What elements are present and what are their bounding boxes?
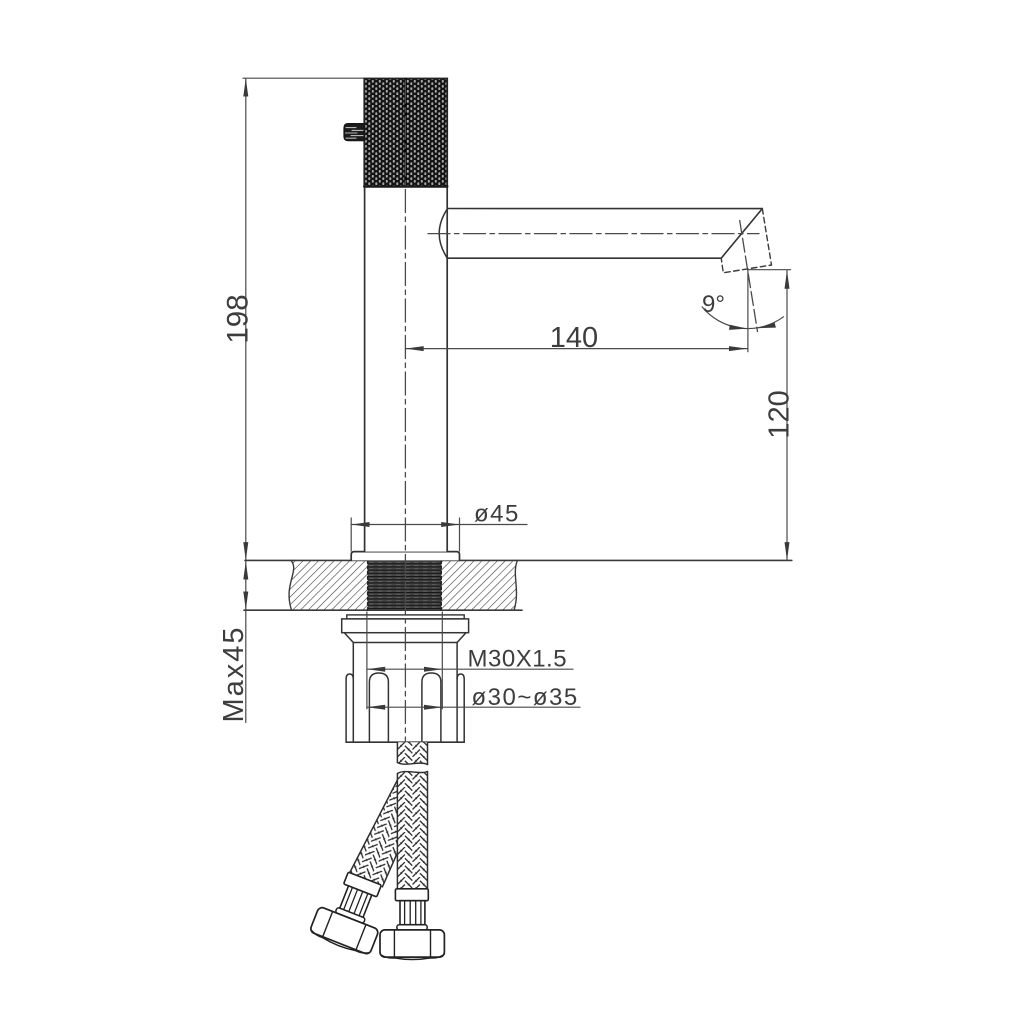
- svg-text:M30X1.5: M30X1.5: [468, 646, 568, 673]
- svg-text:ø30~ø35: ø30~ø35: [472, 684, 579, 711]
- svg-text:9°: 9°: [702, 291, 725, 318]
- svg-text:140: 140: [550, 322, 598, 354]
- svg-text:Max45: Max45: [218, 625, 250, 722]
- svg-text:198: 198: [222, 294, 255, 343]
- svg-text:ø45: ø45: [474, 501, 520, 528]
- svg-text:120: 120: [763, 390, 795, 438]
